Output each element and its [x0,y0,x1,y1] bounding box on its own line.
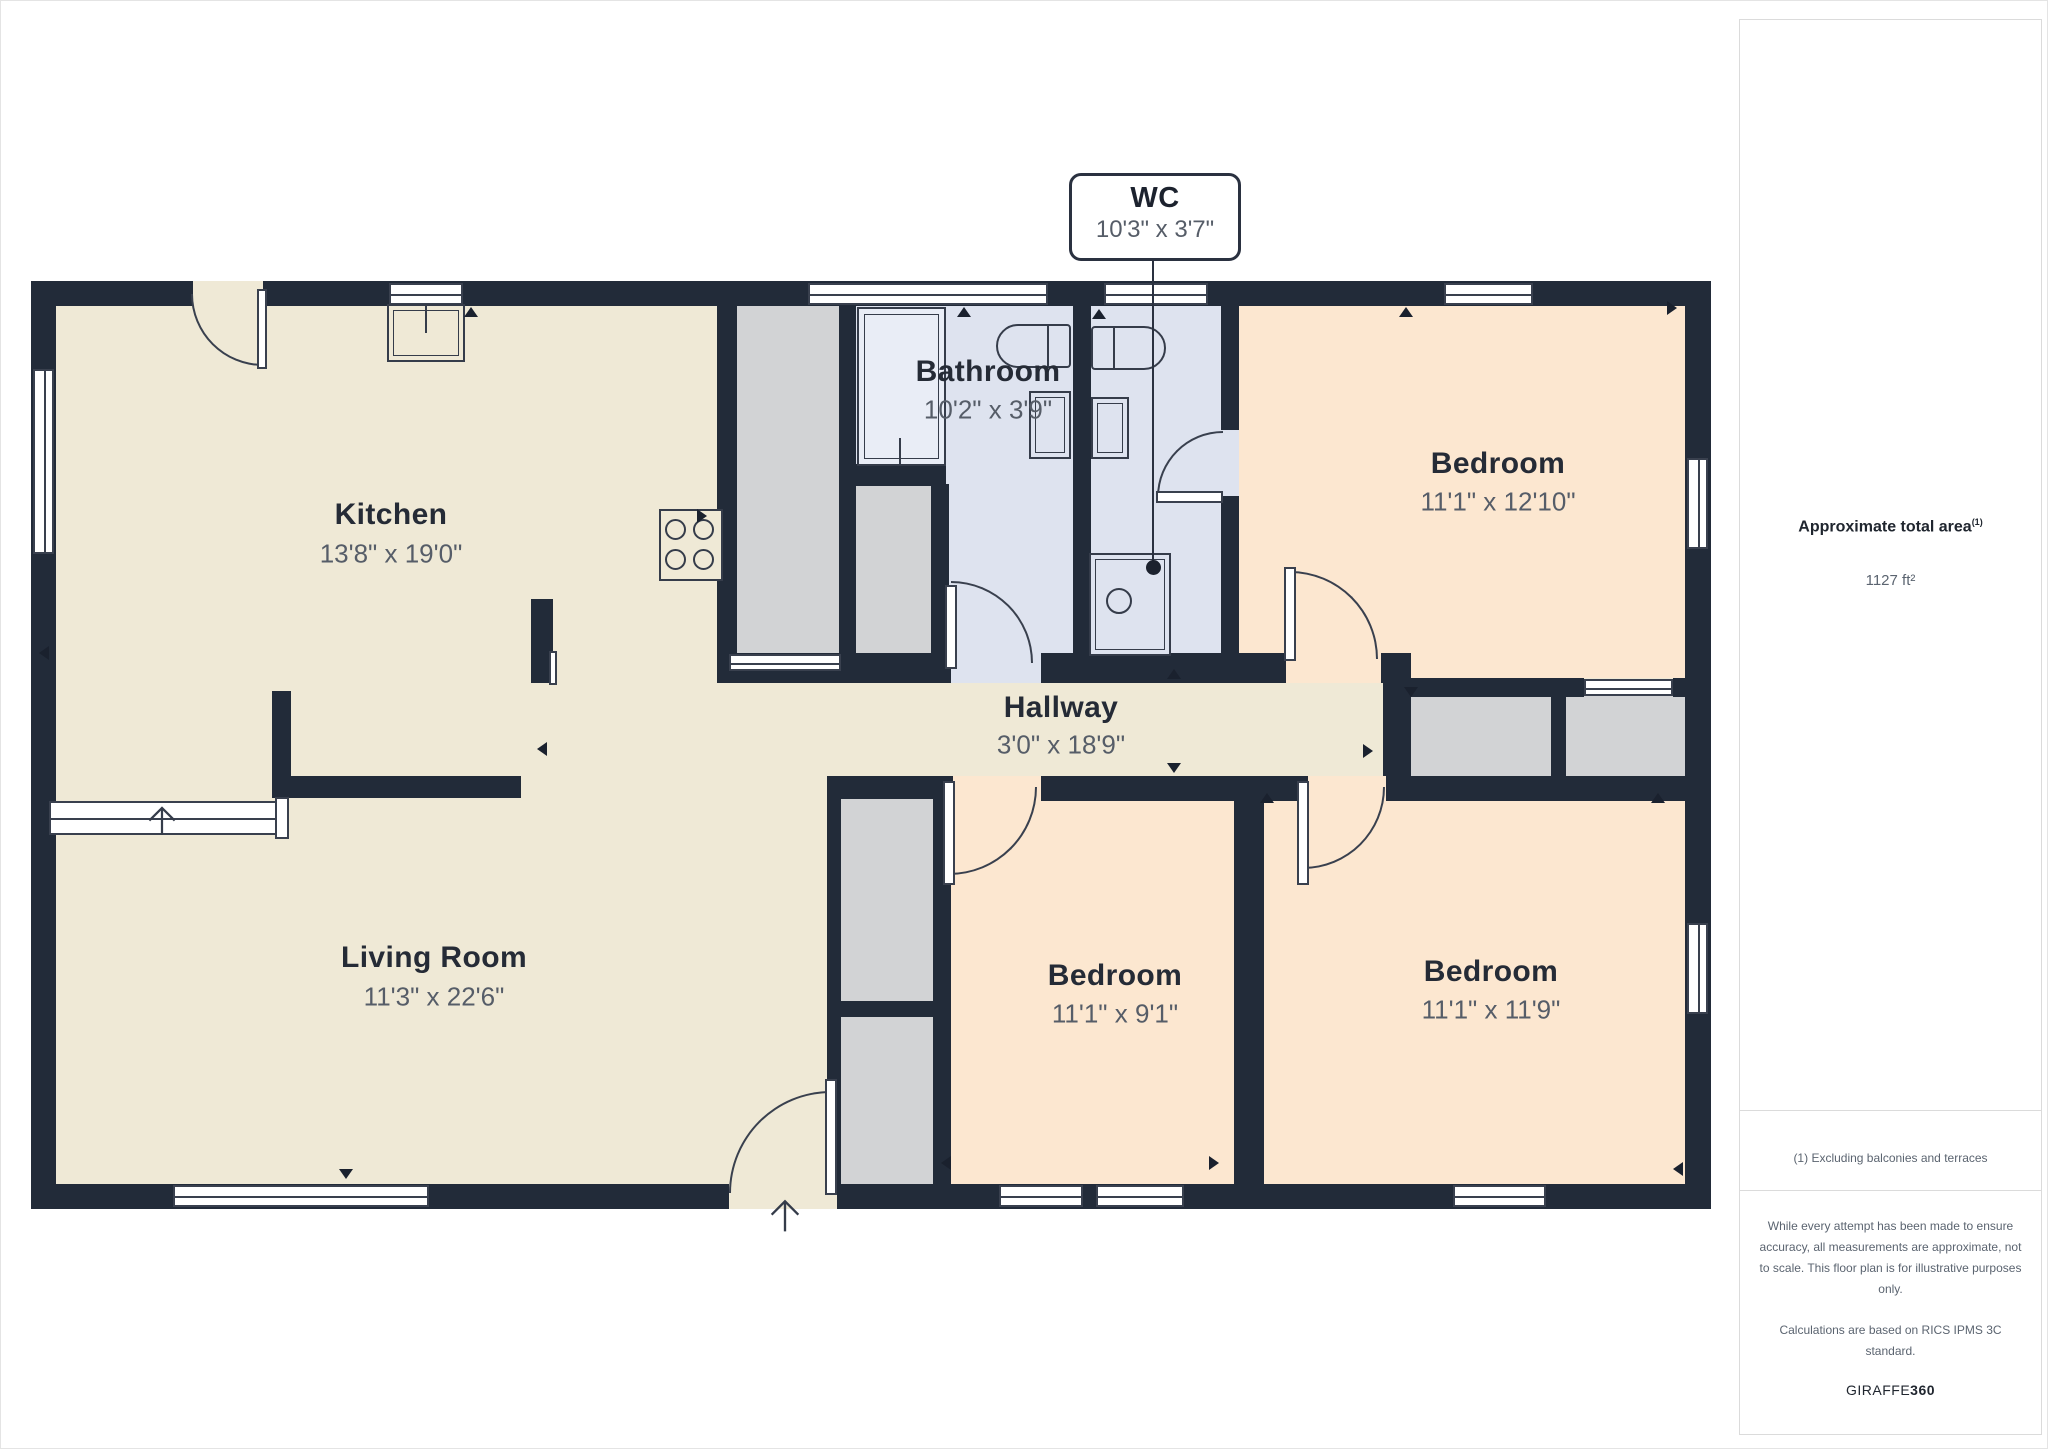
marker-icon [1667,301,1677,315]
total-area-title: Approximate total area(1) [1740,517,2041,536]
total-area-title-text: Approximate total area [1798,518,1971,535]
wall-kitchen-closet [717,306,737,656]
closet-column-upper [841,799,933,1001]
wall-closet-row-divider [1551,678,1566,781]
room-label-bedroom-bottom-right: Bedroom [1424,955,1558,989]
marker-icon [339,1169,353,1179]
entry-arrow-icon [765,1193,805,1233]
divider-end-cap [275,797,289,839]
room-dims-bedroom-top-right: 11'1" x 12'10" [1420,487,1575,518]
divider-arrow-icon [143,803,181,835]
door-leaf-bathroom [945,585,957,669]
window-bedroom-mid-bottom-2 [1096,1185,1184,1207]
wc-shower-drain [1106,588,1132,614]
window-kitchen-top [389,283,463,305]
window-wc-top [1104,283,1208,305]
wc-callout-dot [1146,560,1161,575]
wc-toilet-cistern-line [1113,328,1115,368]
total-area-value: 1127 ft² [1740,572,2041,589]
door-leaf-bedroom-br [1297,781,1309,885]
wall-bedroom-mid-top [1041,776,1234,801]
wall-closet-col-top [827,776,953,799]
room-label-bedroom-top-right: Bedroom [1431,447,1565,481]
marker-icon [39,646,49,660]
footnote-text: (1) Excluding balconies and terraces [1751,1148,2031,1169]
room-label-living-room: Living Room [341,941,527,975]
slider-closet-bedroom-tr [1584,679,1673,696]
wc-callout: WC 10'3" x 3'7" [1069,173,1241,261]
window-bedroom-br-bottom [1453,1185,1546,1207]
marker-icon [1651,793,1665,803]
wall-outer-right [1685,281,1711,1209]
marker-icon [537,742,547,756]
sidebar-divider [1740,1110,2041,1111]
closet-hall-right [1566,696,1686,781]
closet-utility-strip [737,306,839,658]
marker-icon [1209,1156,1219,1170]
marker-icon [1167,763,1181,773]
marker-icon [1363,744,1373,758]
standard-note-text: Calculations are based on RICS IPMS 3C s… [1758,1320,2024,1362]
wall-closet-row-corner [1673,678,1691,697]
marker-icon [1167,669,1181,679]
window-living-bottom [173,1185,429,1207]
window-bedroom-br-right [1687,923,1708,1014]
total-area-footnote-marker: (1) [1972,517,1983,527]
door-leaf-wc [1156,491,1223,503]
window-bedroom-mid-bottom-1 [999,1185,1083,1207]
window-bedroom-tr-right [1687,458,1708,549]
wc-toilet [1091,326,1166,370]
room-dims-hallway: 3'0" x 18'9" [997,730,1125,761]
room-label-hallway: Hallway [1004,691,1119,725]
stove-burner [665,549,686,570]
door-leaf-bedroom-mid [943,781,955,885]
wc-callout-dims: 10'3" x 3'7" [1072,216,1238,244]
closet-hall-left [1411,696,1551,781]
wall-below-shower [856,464,946,486]
room-dims-bathroom: 10'2" x 3'9" [924,395,1052,426]
wall-between-bedrooms [1234,776,1264,1191]
marker-icon [1399,307,1413,317]
room-dims-living-room: 11'3" x 22'6" [364,982,505,1013]
marker-icon [941,1156,951,1170]
giraffe360-logo-suffix: 360 [1910,1382,1935,1398]
wc-callout-title: WC [1072,182,1238,215]
room-label-bedroom-bottom-middle: Bedroom [1048,959,1182,993]
room-label-kitchen: Kitchen [335,498,448,532]
info-sidebar: Approximate total area(1) 1127 ft² (1) E… [1739,19,2042,1435]
jamb-cap [549,651,557,685]
closet-bathroom-lower [856,486,931,659]
room-label-bathroom: Bathroom [916,355,1061,389]
wall-hall-top-b [1041,653,1286,683]
stove-burner [665,519,686,540]
marker-icon [957,307,971,317]
marker-icon [1092,309,1106,319]
wall-living-stub-horizontal [272,776,521,798]
wall-closet-col-mid [841,1001,933,1017]
kitchen-sink-faucet [425,304,427,333]
closet-column-lower [841,1017,933,1186]
room-dims-bedroom-bottom-right: 11'1" x 11'9" [1422,995,1561,1026]
wc-sink-inner [1097,403,1123,453]
window-bathroom-top [808,283,1048,305]
marker-icon [1260,793,1274,803]
room-dims-bedroom-bottom-middle: 11'1" x 9'1" [1052,999,1178,1030]
disclaimer-text: While every attempt has been made to ens… [1758,1216,2024,1300]
wall-wc-bedroom-upper [1221,306,1239,430]
room-dims-kitchen: 13'8" x 19'0" [320,539,463,570]
door-leaf-bedroom-tr [1284,567,1296,661]
door-leaf-entry [825,1079,837,1195]
wall-closet-bathroom [839,306,856,658]
marker-icon [1673,1162,1683,1176]
bathroom-shower-faucet [899,438,901,466]
stove-burner [693,549,714,570]
stove [659,509,723,581]
door-leaf-kitchen [257,289,267,369]
wc-callout-line [1152,259,1154,569]
window-bedroom-tr-top [1444,283,1533,305]
giraffe360-logo: GIRAFFE360 [1740,1382,2041,1398]
window-kitchen-left [33,369,54,554]
doorway-wc-ensuite [1221,431,1239,496]
marker-icon [464,307,478,317]
marker-icon [1404,687,1418,697]
hatch-utility-sill [729,654,841,671]
sidebar-divider [1740,1190,2041,1191]
marker-icon [697,509,707,523]
giraffe360-logo-text: GIRAFFE [1846,1382,1910,1398]
floorplan-page: WC 10'3" x 3'7" Kitchen 13'8" x 19'0" Li… [0,0,2048,1449]
wall-bedroom-br-top-b [1386,776,1691,801]
